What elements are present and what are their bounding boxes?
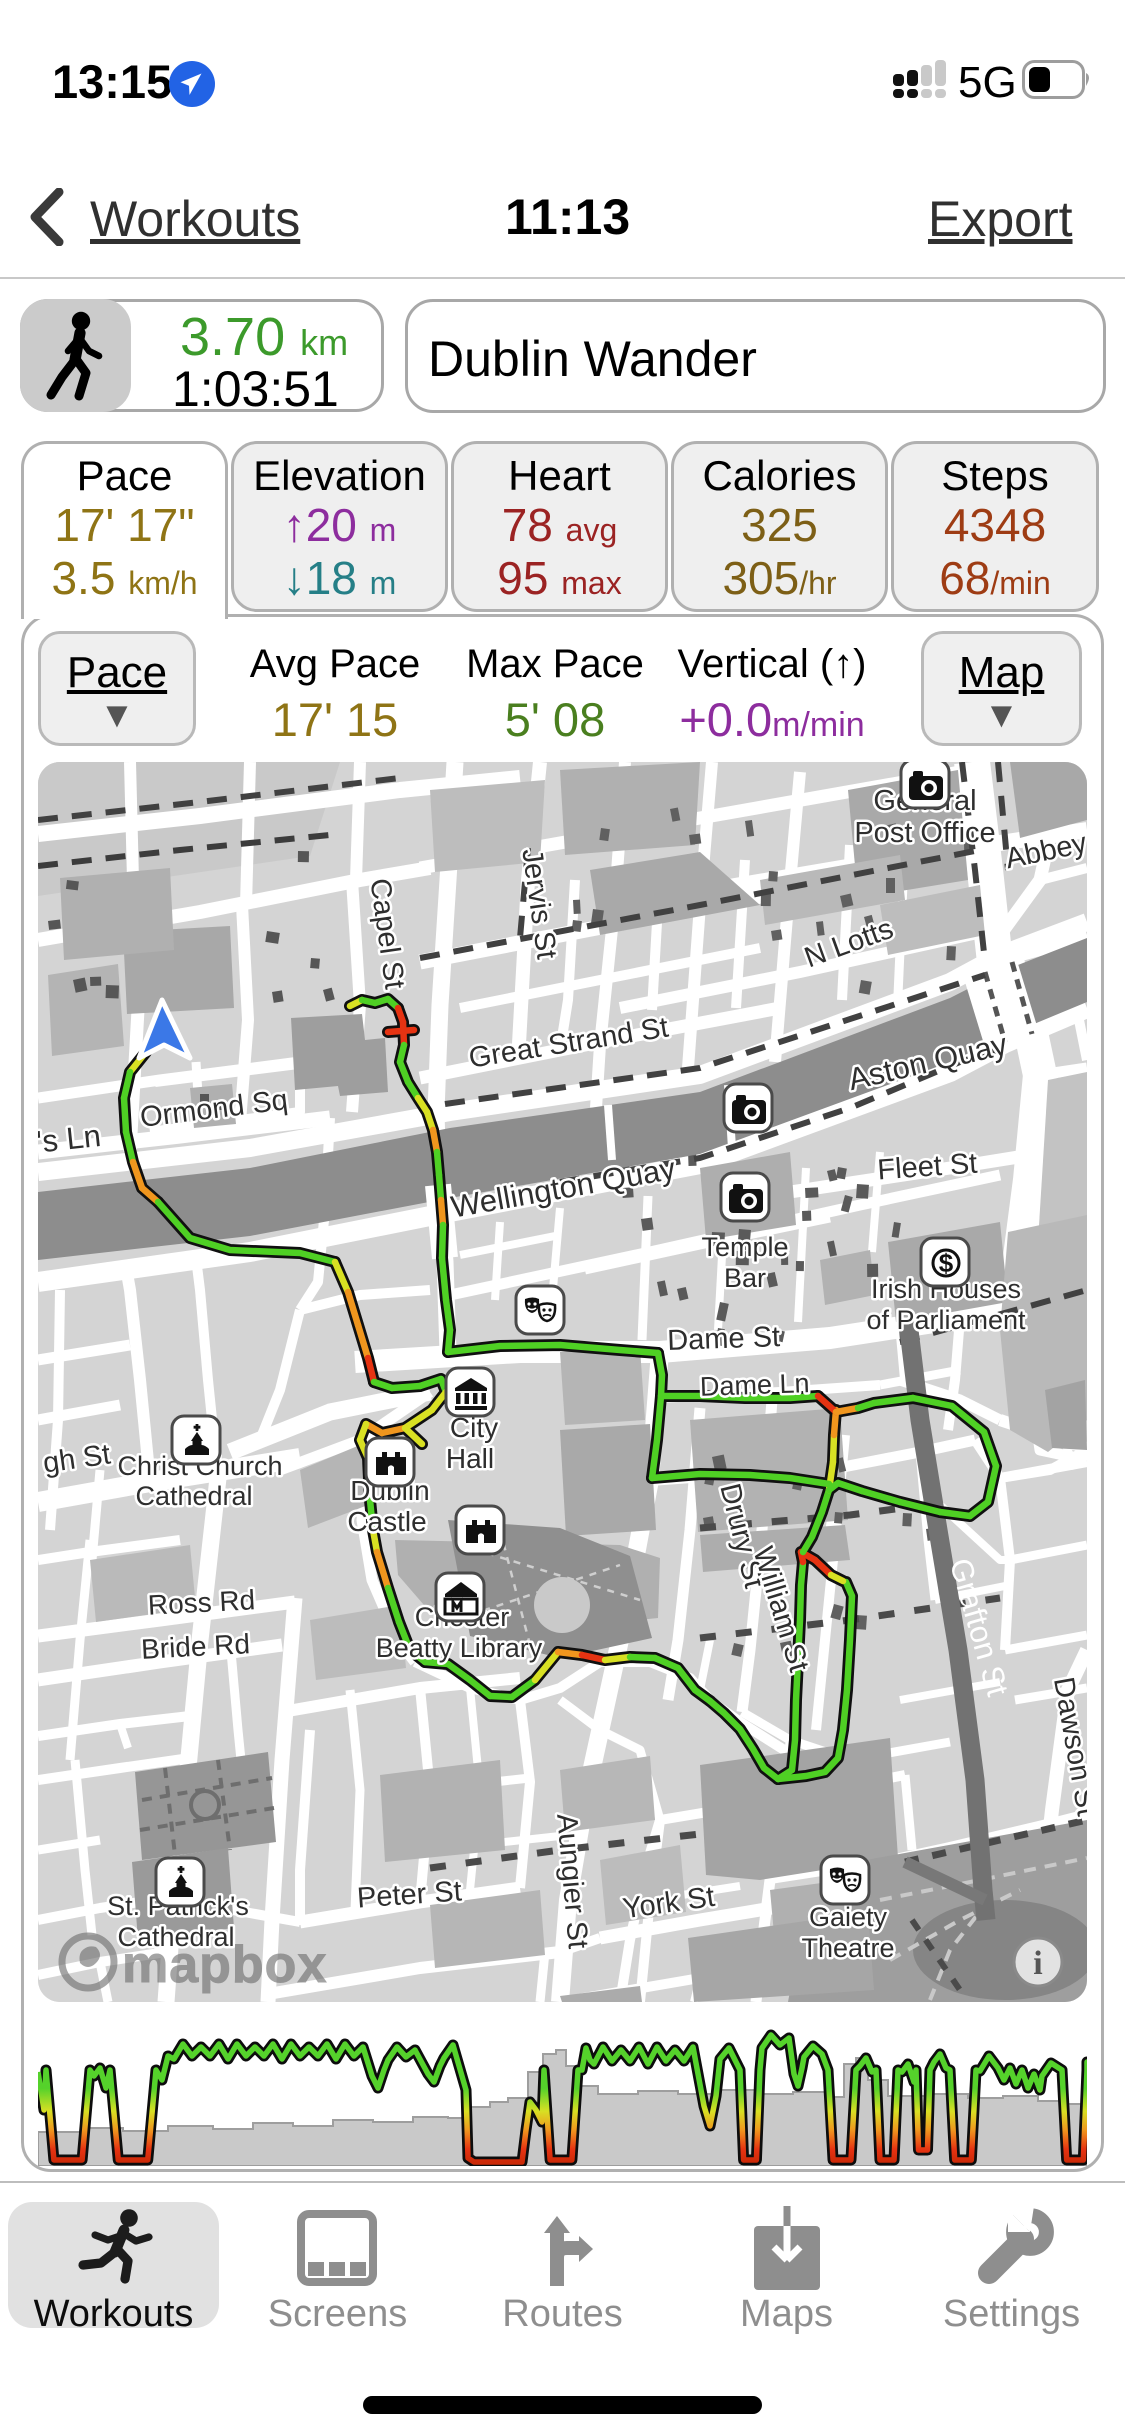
- svg-text:Bar: Bar: [724, 1263, 766, 1293]
- svg-text:Post Office: Post Office: [854, 817, 995, 849]
- svg-text:Temple: Temple: [701, 1232, 788, 1262]
- svg-text:Theatre: Theatre: [801, 1933, 894, 1963]
- svg-text:mapbox: mapbox: [122, 1936, 327, 1994]
- svg-text:Dame St: Dame St: [667, 1321, 781, 1357]
- svg-text:Castle: Castle: [347, 1506, 426, 1537]
- svg-text:Dame Ln: Dame Ln: [699, 1368, 810, 1402]
- svg-text:Bride Rd: Bride Rd: [140, 1628, 250, 1665]
- svg-text:Ross Rd: Ross Rd: [147, 1584, 256, 1621]
- svg-text:Cathedral: Cathedral: [135, 1481, 252, 1511]
- svg-text:$: $: [939, 1248, 954, 1278]
- svg-text:Hall: Hall: [446, 1443, 494, 1474]
- svg-text:Gaiety: Gaiety: [809, 1902, 888, 1932]
- svg-text:Beatty Library: Beatty Library: [376, 1633, 543, 1663]
- svg-text:i: i: [1033, 1945, 1042, 1982]
- svg-text:of Parliament: of Parliament: [866, 1305, 1026, 1335]
